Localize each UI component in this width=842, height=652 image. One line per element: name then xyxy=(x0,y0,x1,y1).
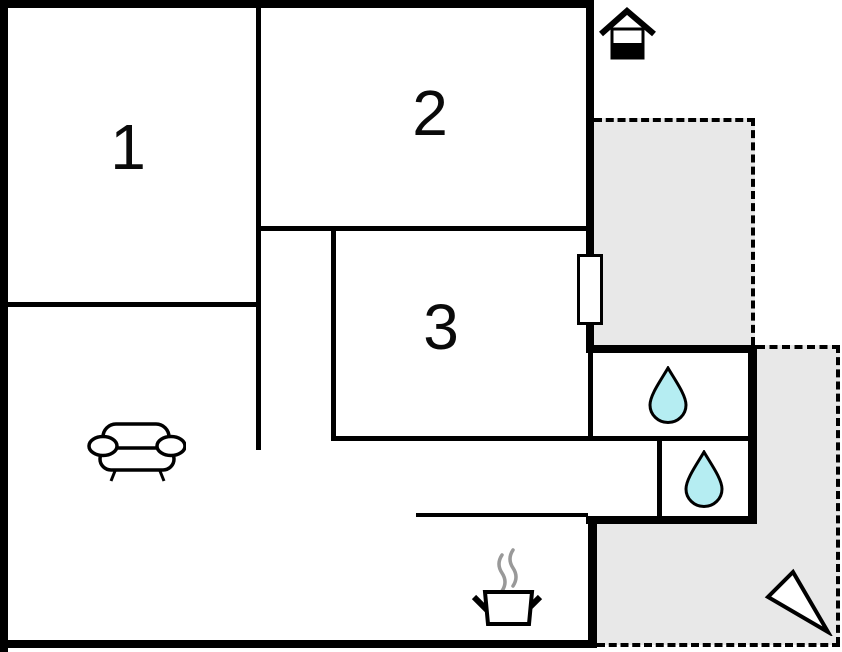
room-1-label: 1 xyxy=(98,112,158,182)
terrace-bottom-area xyxy=(597,524,757,645)
wall-room3-left xyxy=(331,226,336,438)
wall-exterior-left xyxy=(0,0,8,652)
wall-bathroom1-left xyxy=(588,352,593,438)
water-drop-icon xyxy=(682,450,726,508)
house-icon xyxy=(598,6,658,66)
terrace-bottom-dashed-edge xyxy=(597,643,840,647)
room-3-label: 3 xyxy=(411,292,471,362)
sofa-icon xyxy=(86,420,186,484)
water-drop-icon xyxy=(646,366,690,424)
wall-annex-right xyxy=(748,345,757,523)
wall-room2-bottom xyxy=(256,226,588,231)
cooking-pot-icon xyxy=(468,546,546,628)
wall-annex-top xyxy=(593,345,757,353)
wall-room1-bottom xyxy=(8,302,258,307)
wall-room3-bottom xyxy=(331,436,751,441)
north-arrow-icon xyxy=(761,564,833,636)
wall-annex-bottom xyxy=(586,516,757,524)
room-2-label: 2 xyxy=(400,78,460,148)
wall-hallway xyxy=(416,513,588,517)
wall-exterior-bottom xyxy=(0,640,590,648)
wall-bathroom2-left xyxy=(657,438,662,518)
wall-exterior-top xyxy=(0,0,594,8)
door-window-marker xyxy=(577,254,603,325)
terrace-upper-area xyxy=(594,118,755,345)
wall-exterior-right-lower xyxy=(588,516,597,648)
floor-plan: 1 2 3 xyxy=(0,0,842,652)
